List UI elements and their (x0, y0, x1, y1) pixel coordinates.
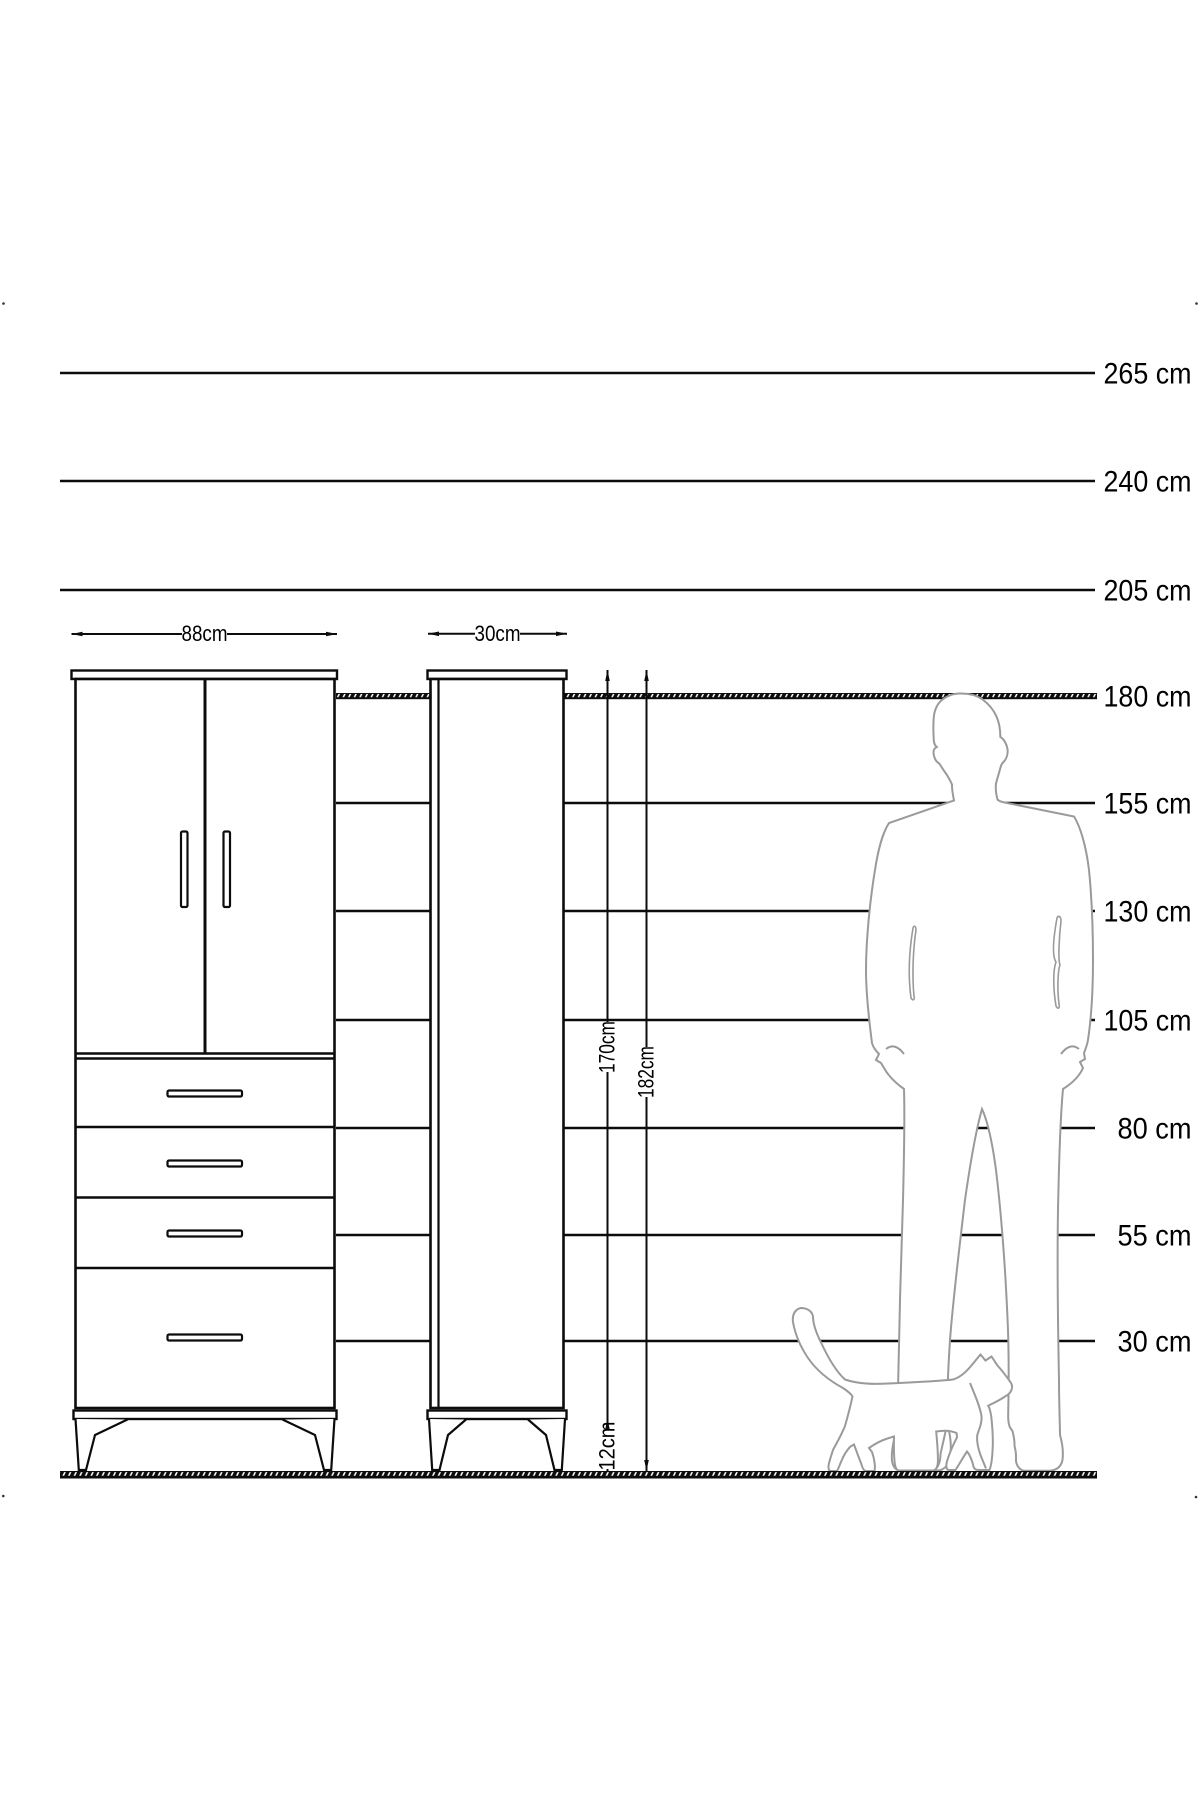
svg-text:265 cm: 265 cm (1104, 358, 1192, 391)
svg-text:182cm: 182cm (634, 1046, 659, 1098)
svg-text:80 cm: 80 cm (1118, 1113, 1192, 1146)
svg-text:30cm: 30cm (475, 621, 521, 646)
svg-text:180 cm: 180 cm (1104, 681, 1192, 714)
svg-text:105 cm: 105 cm (1104, 1005, 1192, 1038)
svg-text:88cm: 88cm (182, 621, 228, 646)
svg-text:30 cm: 30 cm (1118, 1326, 1192, 1359)
svg-text:55 cm: 55 cm (1118, 1220, 1192, 1253)
svg-text:205 cm: 205 cm (1104, 575, 1192, 608)
svg-text:240 cm: 240 cm (1104, 466, 1192, 499)
svg-text:12cm: 12cm (595, 1422, 620, 1471)
svg-text:155 cm: 155 cm (1104, 788, 1192, 821)
svg-text:130 cm: 130 cm (1104, 896, 1192, 929)
svg-text:170cm: 170cm (595, 1021, 620, 1073)
